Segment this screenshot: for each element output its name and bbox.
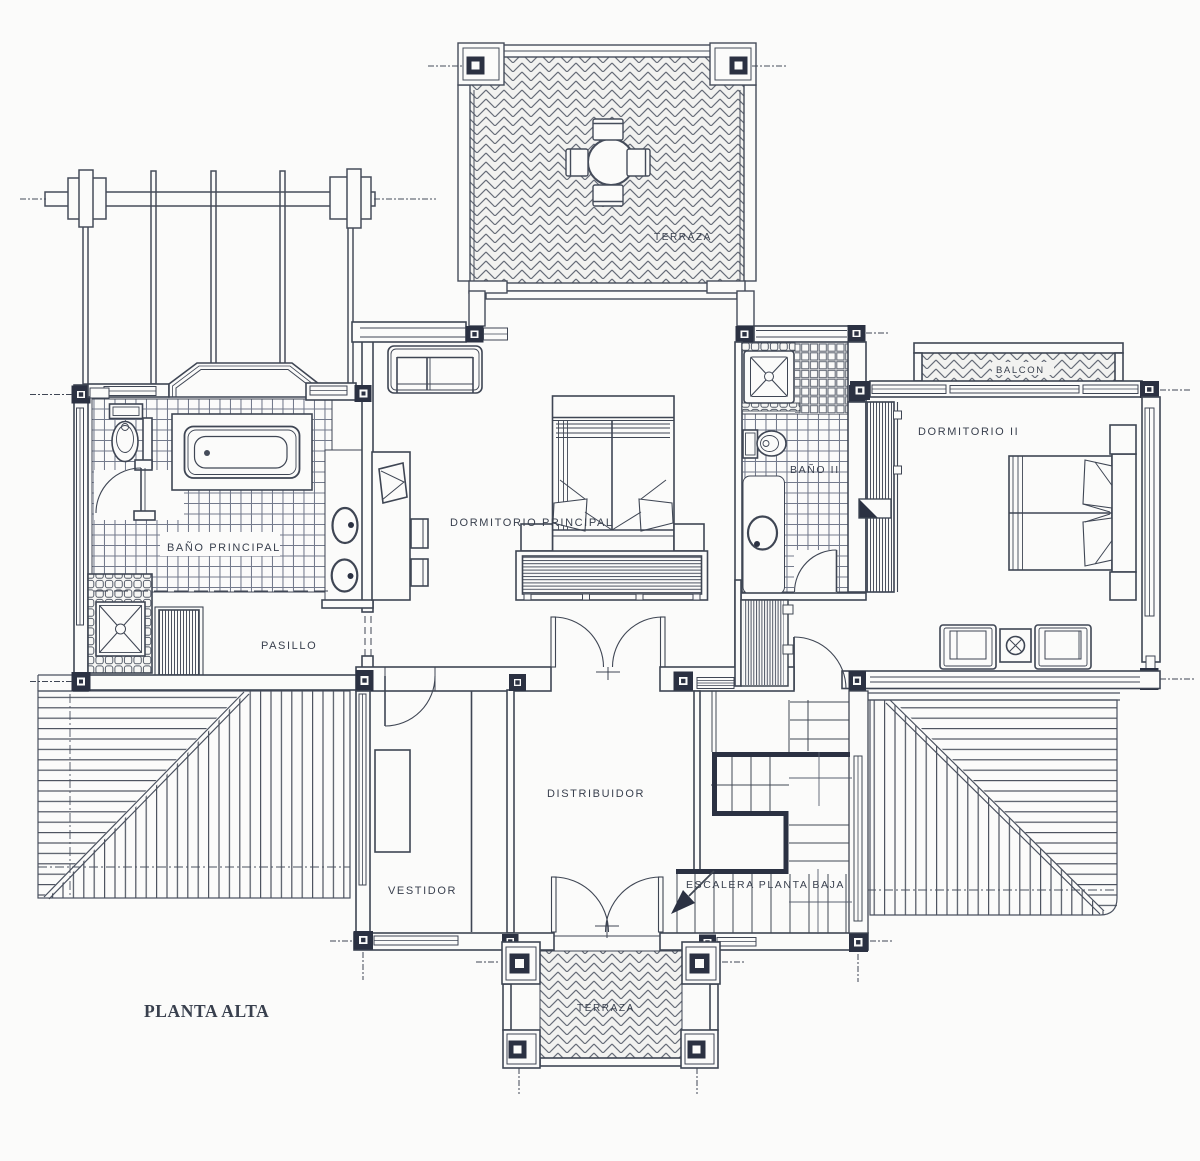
svg-text:VESTIDOR: VESTIDOR: [388, 885, 457, 897]
svg-text:PLANTA ALTA: PLANTA ALTA: [144, 1001, 269, 1021]
svg-text:TERRAZA: TERRAZA: [577, 1003, 635, 1014]
svg-text:DORMITORIO PRINCIPAL: DORMITORIO PRINCIPAL: [450, 517, 614, 529]
svg-text:PASILLO: PASILLO: [261, 640, 317, 652]
svg-text:DORMITORIO II: DORMITORIO II: [918, 426, 1019, 438]
svg-text:BALCON: BALCON: [996, 365, 1045, 376]
svg-text:BAÑO II: BAÑO II: [790, 463, 840, 476]
svg-text:DISTRIBUIDOR: DISTRIBUIDOR: [547, 788, 645, 800]
svg-text:ESCALERA PLANTA BAJA: ESCALERA PLANTA BAJA: [686, 879, 845, 891]
svg-text:BAÑO PRINCIPAL: BAÑO PRINCIPAL: [167, 541, 281, 554]
svg-text:TERRAZA: TERRAZA: [654, 232, 712, 243]
